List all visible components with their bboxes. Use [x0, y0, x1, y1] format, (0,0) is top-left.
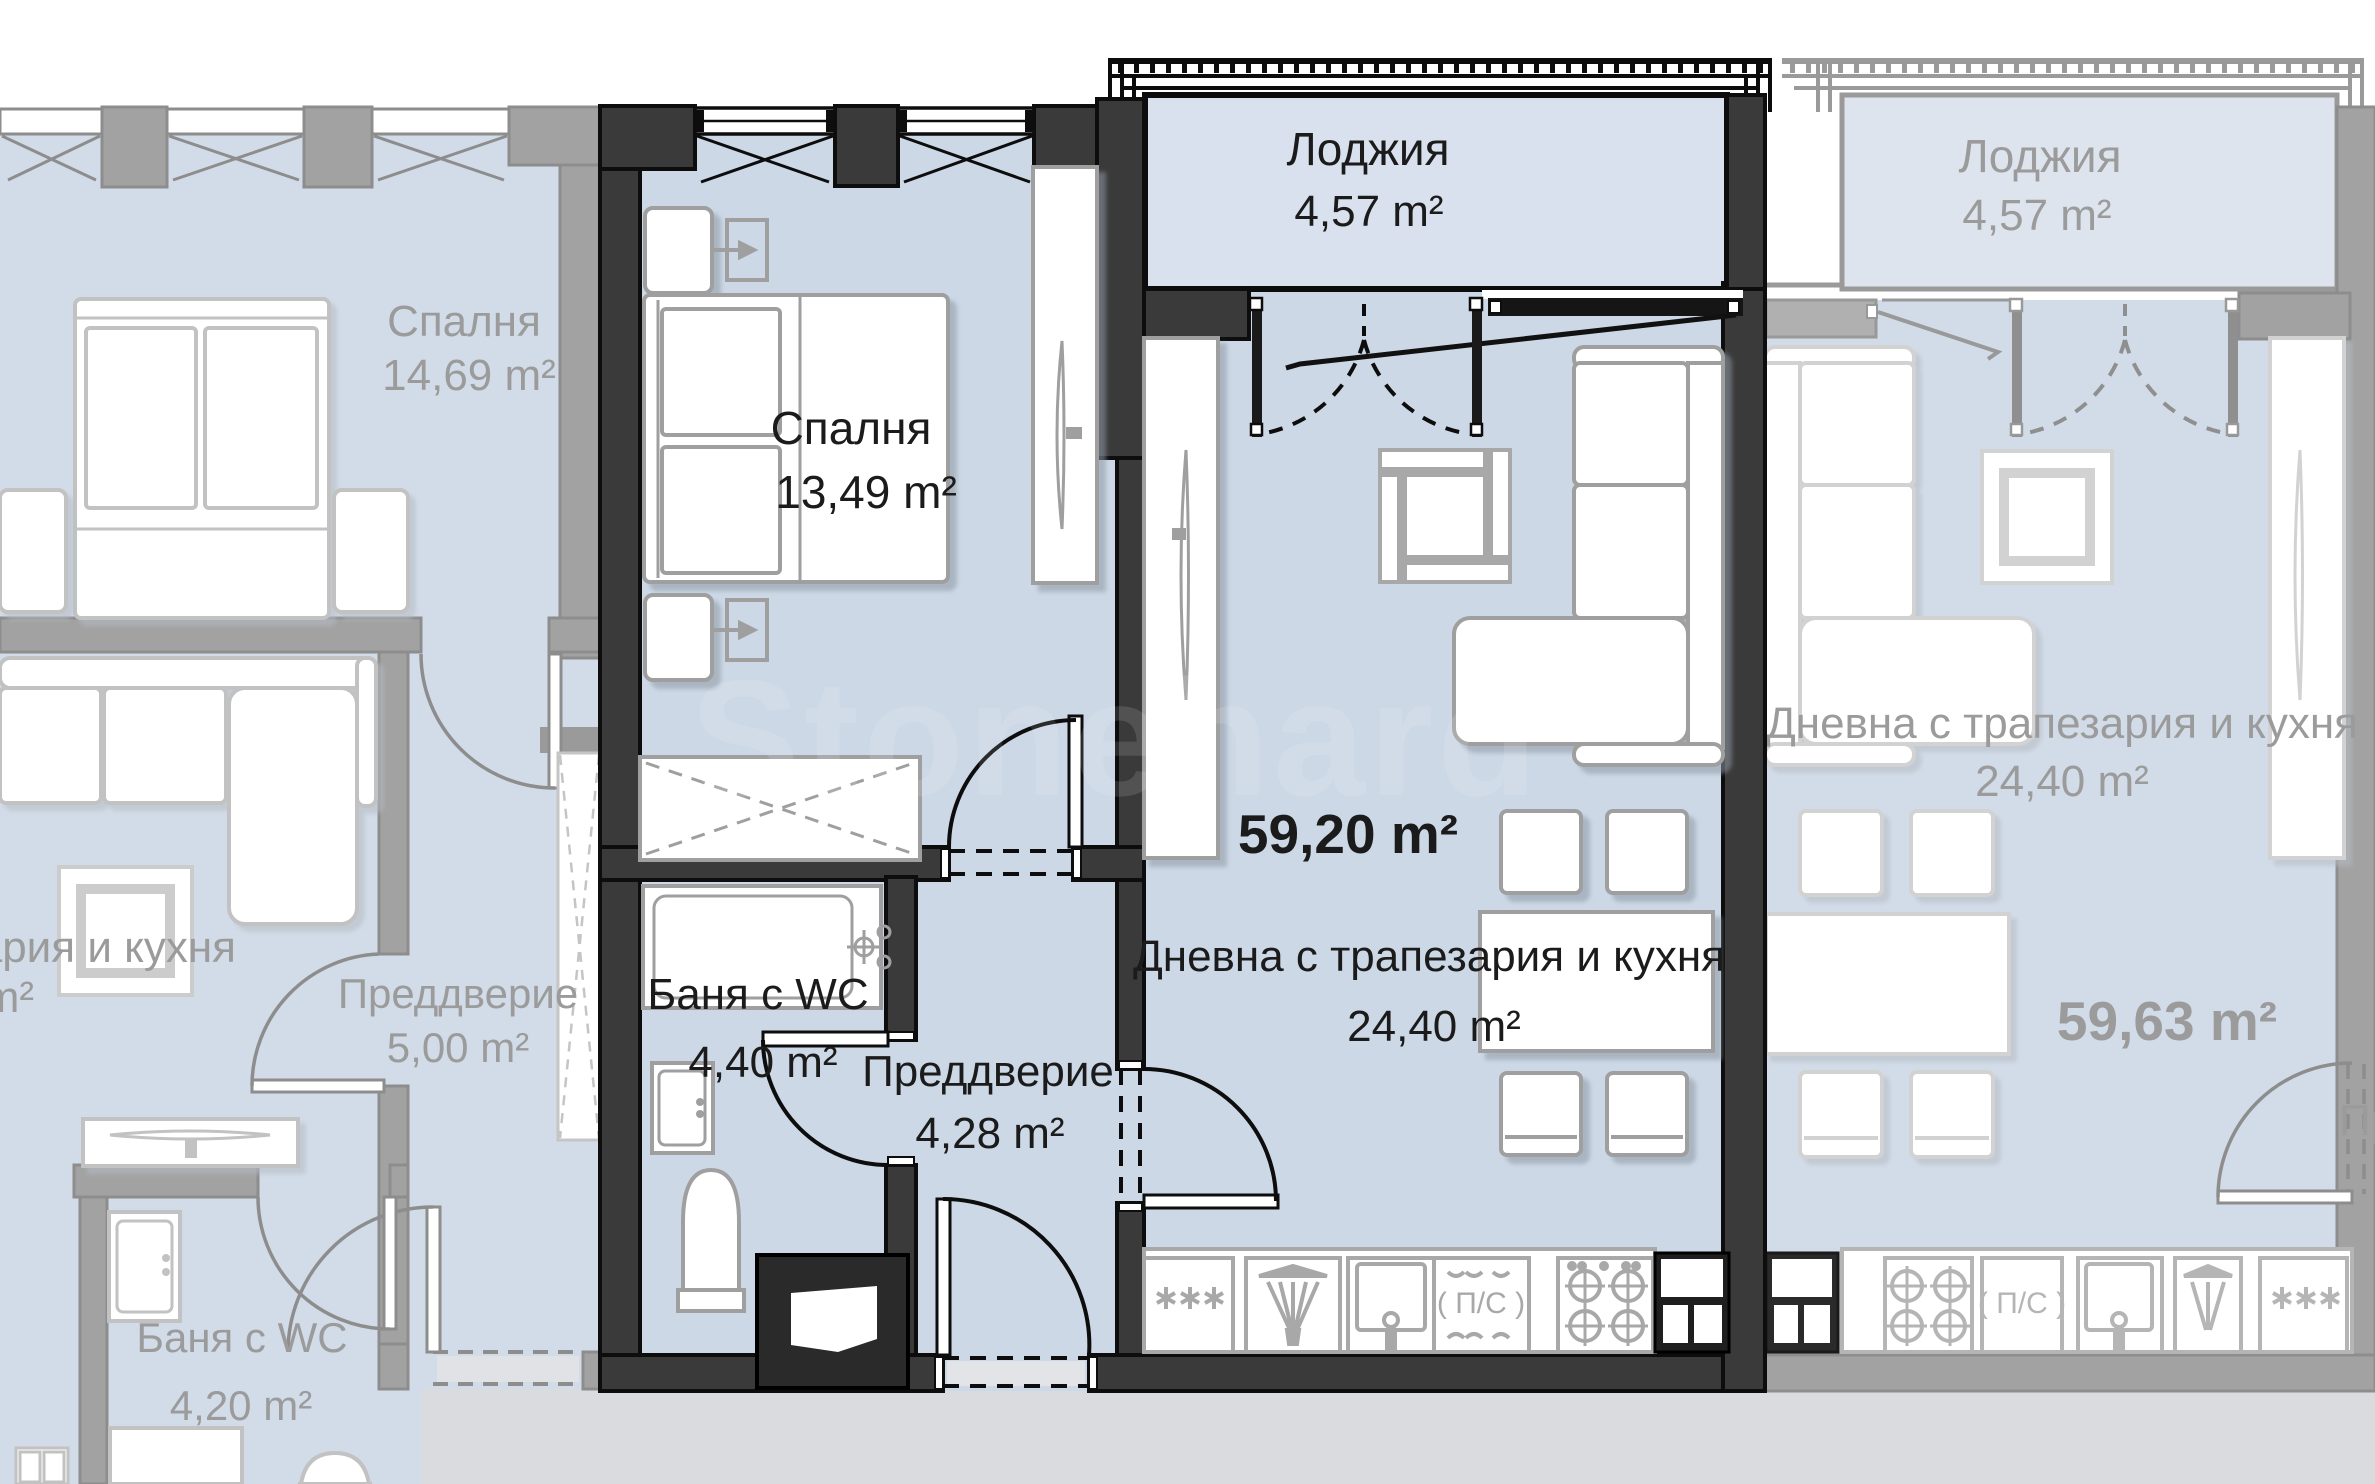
- svg-text:Лоджия: Лоджия: [1959, 130, 2122, 182]
- svg-text:4,57 m²: 4,57 m²: [1962, 191, 2111, 240]
- svg-text:Stonehard: Stonehard: [690, 646, 1542, 830]
- svg-text:4,57 m²: 4,57 m²: [1294, 187, 1443, 236]
- svg-text:Преддверие: Преддверие: [862, 1047, 1114, 1096]
- svg-text:Баня с WC: Баня с WC: [647, 970, 868, 1019]
- svg-text:Дневна с трапезария и кухня: Дневна с трапезария и кухня: [0, 923, 236, 972]
- svg-text:Дневна с трапезария и кухня: Дневна с трапезария и кухня: [1133, 932, 1725, 981]
- svg-text:13,49 m²: 13,49 m²: [775, 466, 957, 518]
- svg-text:Дневна с трапезария и кухня: Дневна с трапезария и кухня: [1766, 699, 2358, 748]
- svg-text:24,40 m²: 24,40 m²: [0, 973, 34, 1022]
- svg-text:24,40 m²: 24,40 m²: [1347, 1002, 1521, 1051]
- svg-text:( П/С ): ( П/С ): [1437, 1287, 1525, 1320]
- svg-text:59,63 m²: 59,63 m²: [2057, 990, 2277, 1052]
- svg-text:Спалня: Спалня: [387, 297, 541, 346]
- svg-text:4,28 m²: 4,28 m²: [915, 1109, 1064, 1158]
- svg-text:( П/С ): ( П/С ): [1978, 1287, 2066, 1320]
- svg-text:4,40 m²: 4,40 m²: [688, 1038, 837, 1087]
- svg-text:24,40 m²: 24,40 m²: [1975, 757, 2149, 806]
- svg-text:4,20 m²: 4,20 m²: [170, 1382, 312, 1429]
- svg-text:Спалня: Спалня: [771, 402, 932, 454]
- svg-text:Преддверие: Преддверие: [2339, 1096, 2375, 1145]
- svg-text:Преддверие: Преддверие: [338, 970, 578, 1017]
- svg-text:14,69 m²: 14,69 m²: [382, 351, 556, 400]
- svg-text:5,00 m²: 5,00 m²: [387, 1024, 529, 1071]
- svg-text:Лоджия: Лоджия: [1287, 123, 1450, 175]
- svg-text:Баня с WC: Баня с WC: [136, 1314, 347, 1361]
